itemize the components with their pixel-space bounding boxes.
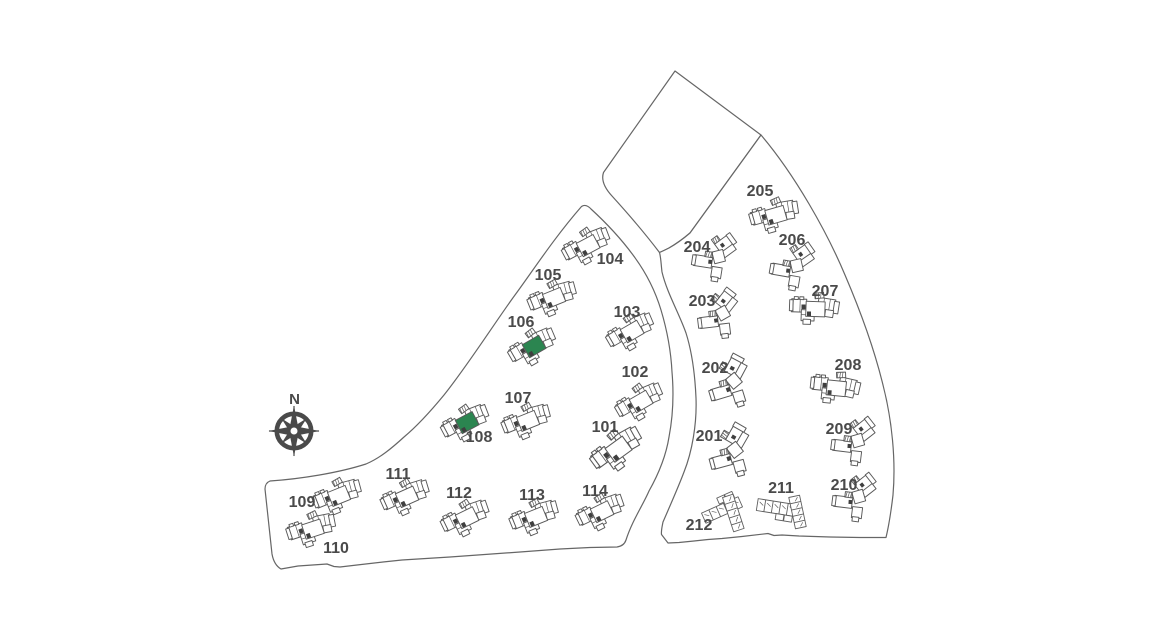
svg-text:209: 209 <box>826 421 853 438</box>
svg-text:201: 201 <box>696 428 723 445</box>
svg-text:N: N <box>289 391 300 408</box>
svg-text:114: 114 <box>582 483 608 500</box>
svg-text:108: 108 <box>466 429 493 446</box>
svg-text:208: 208 <box>835 357 862 374</box>
svg-text:202: 202 <box>702 360 729 377</box>
svg-text:111: 111 <box>386 466 411 483</box>
svg-text:112: 112 <box>446 485 472 502</box>
svg-text:211: 211 <box>768 480 794 497</box>
svg-text:110: 110 <box>323 540 349 557</box>
svg-text:205: 205 <box>747 183 774 200</box>
svg-text:207: 207 <box>812 283 839 300</box>
svg-text:107: 107 <box>505 390 532 407</box>
svg-text:203: 203 <box>689 293 716 310</box>
svg-text:101: 101 <box>592 419 619 436</box>
svg-text:113: 113 <box>519 487 545 504</box>
svg-text:106: 106 <box>508 314 535 331</box>
svg-text:204: 204 <box>684 239 711 256</box>
svg-text:104: 104 <box>597 251 624 268</box>
svg-text:210: 210 <box>831 477 858 494</box>
svg-text:109: 109 <box>289 494 316 511</box>
svg-text:105: 105 <box>535 267 562 284</box>
svg-text:102: 102 <box>622 364 649 381</box>
svg-text:212: 212 <box>686 517 713 534</box>
svg-text:206: 206 <box>779 232 806 249</box>
svg-text:103: 103 <box>614 304 641 321</box>
